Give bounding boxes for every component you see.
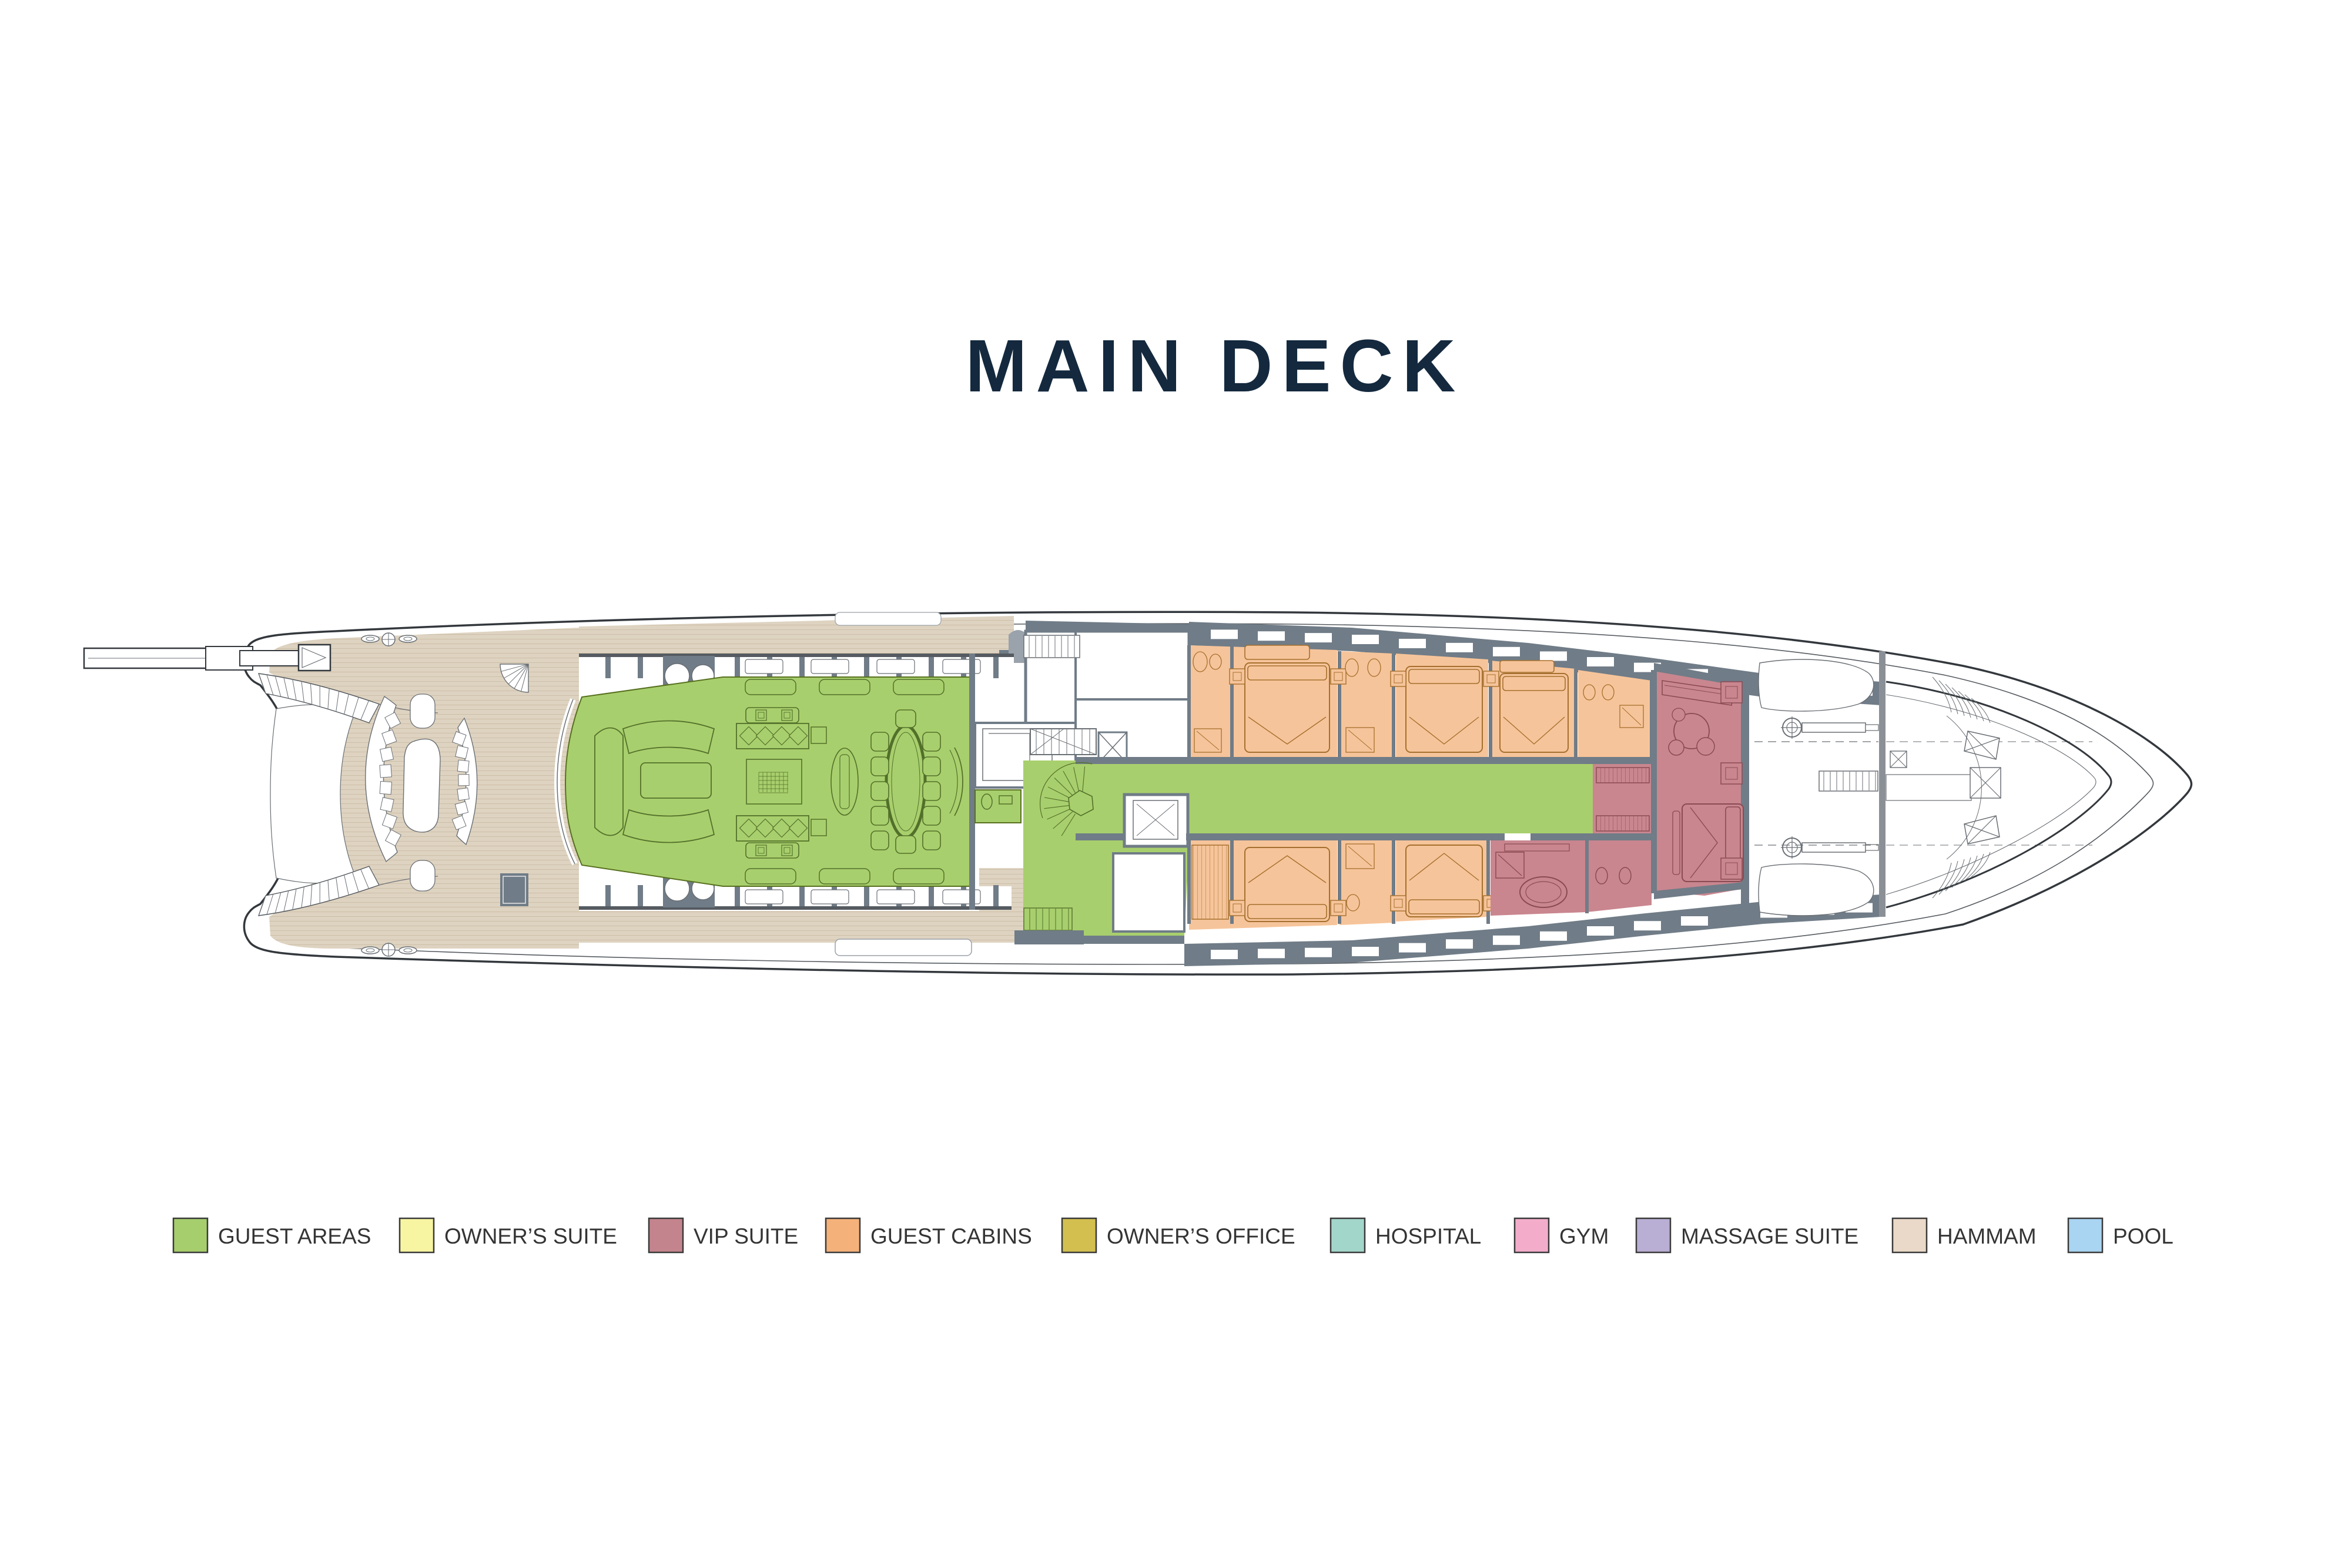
svg-text:HAMMAM: HAMMAM bbox=[1937, 1224, 2037, 1248]
svg-text:GUEST AREAS: GUEST AREAS bbox=[218, 1224, 371, 1248]
svg-text:GUEST CABINS: GUEST CABINS bbox=[870, 1224, 1032, 1248]
svg-text:HOSPITAL: HOSPITAL bbox=[1375, 1224, 1481, 1248]
svg-text:OWNER’S OFFICE: OWNER’S OFFICE bbox=[1107, 1224, 1295, 1248]
svg-text:GYM: GYM bbox=[1559, 1224, 1609, 1248]
svg-text:POOL: POOL bbox=[2113, 1224, 2173, 1248]
svg-text:MAIN DECK: MAIN DECK bbox=[966, 324, 1465, 407]
svg-text:OWNER’S SUITE: OWNER’S SUITE bbox=[444, 1224, 617, 1248]
svg-text:MASSAGE SUITE: MASSAGE SUITE bbox=[1681, 1224, 1858, 1248]
svg-text:VIP SUITE: VIP SUITE bbox=[694, 1224, 798, 1248]
